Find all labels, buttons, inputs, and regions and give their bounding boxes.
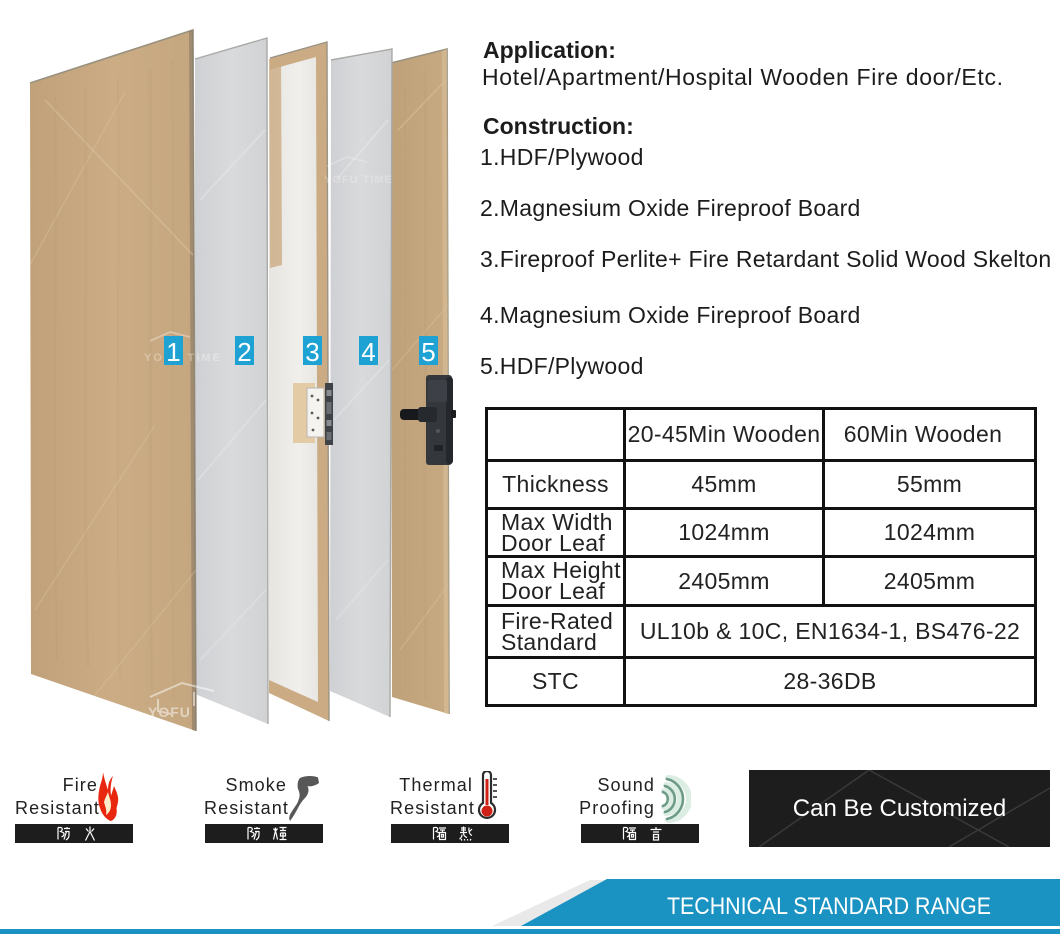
svg-text:3: 3: [305, 337, 319, 367]
svg-text:2: 2: [237, 337, 251, 367]
svg-text:YOFU TIME: YOFU TIME: [324, 174, 393, 186]
svg-text:4: 4: [361, 337, 375, 367]
svg-text:5: 5: [421, 337, 435, 367]
svg-text:YOFU: YOFU: [148, 704, 191, 720]
svg-text:TECHNICAL STANDARD RANGE: TECHNICAL STANDARD RANGE: [667, 893, 991, 920]
svg-text:1: 1: [166, 337, 180, 367]
